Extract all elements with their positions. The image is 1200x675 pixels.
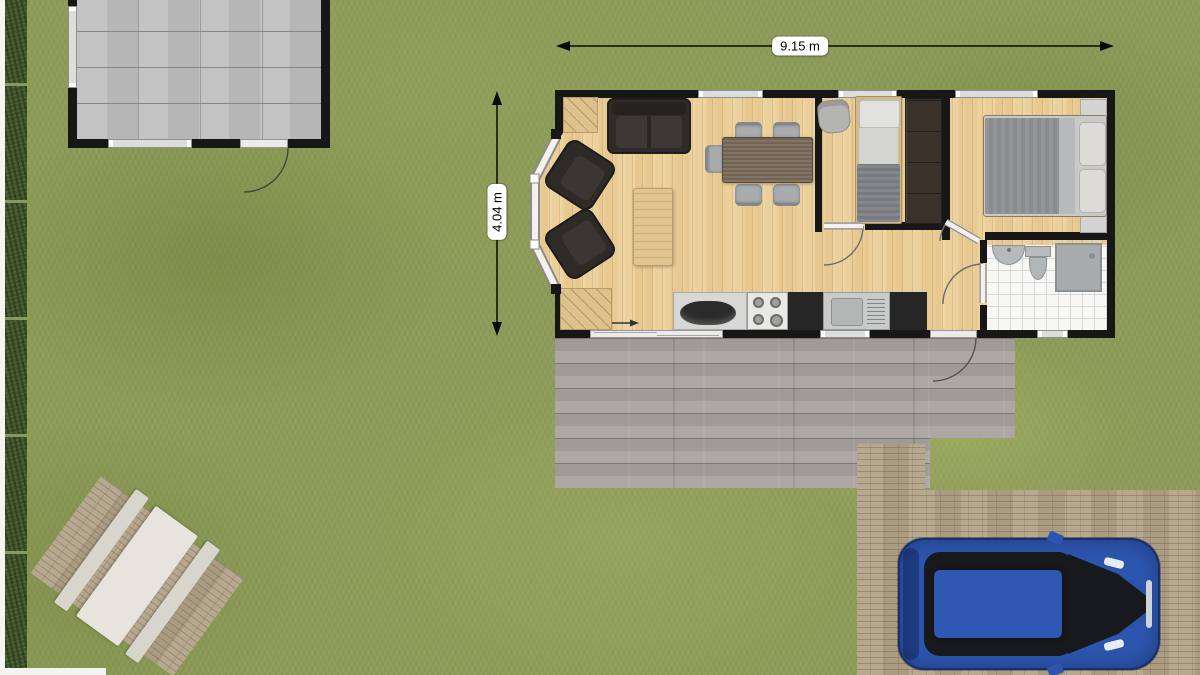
blanket (857, 164, 900, 222)
wood-deck (555, 338, 1015, 438)
site-plan-scene: 9.15 m 4.04 m (0, 0, 1200, 675)
shed (68, 0, 330, 148)
double-bed[interactable] (983, 115, 1107, 217)
corner-step[interactable] (563, 97, 598, 133)
armchair-seat (560, 218, 608, 267)
kitchen-sink[interactable] (823, 292, 890, 330)
car[interactable] (898, 538, 1160, 670)
sofa[interactable] (607, 98, 691, 154)
wall-bedroom-bathroom (985, 232, 1107, 240)
burner (770, 297, 781, 308)
car-rear-shade (903, 548, 919, 660)
border-strip-bottom (0, 668, 106, 675)
wall-bathroom-lower (980, 305, 987, 330)
dining-table[interactable] (722, 137, 813, 183)
sheet (859, 128, 898, 164)
house (555, 90, 1115, 338)
wall-bathroom-upper (980, 240, 987, 263)
deck-door[interactable] (930, 330, 977, 338)
dimension-width-arrow (556, 41, 1114, 51)
pillow (1079, 169, 1106, 213)
toilet-tank (1025, 246, 1051, 257)
dimension-height-label: 4.04 m (488, 184, 507, 240)
counter-dark[interactable] (788, 292, 823, 330)
toilet-bowl (1029, 257, 1047, 280)
window-living (698, 90, 763, 98)
sofa-seat (616, 116, 682, 148)
dining-chair[interactable] (735, 184, 762, 206)
wall-right (1107, 90, 1115, 338)
corner-step[interactable] (560, 288, 612, 330)
window-bedroom-double (955, 90, 1038, 98)
pillow (1079, 122, 1106, 166)
sofa-back (612, 102, 686, 115)
wardrobe[interactable] (905, 98, 942, 224)
dimension-width-label: 9.15 m (772, 37, 828, 56)
burner (770, 314, 783, 327)
shower[interactable] (1055, 243, 1102, 292)
counter-dark[interactable] (890, 292, 927, 330)
dining-chair[interactable] (773, 184, 800, 206)
brick-patio (31, 476, 244, 675)
shed-window-front (108, 139, 192, 148)
kitchen-counter[interactable] (673, 292, 747, 330)
stove[interactable] (747, 292, 788, 330)
wall-bedrooms (942, 98, 950, 240)
armchair-seat (559, 154, 607, 203)
shed-door[interactable] (240, 139, 288, 148)
sink-bowl (831, 298, 863, 326)
picnic-table[interactable] (54, 489, 220, 663)
hedge (5, 0, 27, 668)
window-bathroom (1037, 330, 1068, 338)
picnic-table-top (76, 506, 198, 647)
bedroom-chair[interactable] (816, 98, 851, 134)
coffee-table[interactable] (633, 188, 673, 266)
window-kitchen (820, 330, 870, 338)
car-roof (934, 570, 1062, 638)
duvet (985, 118, 1061, 214)
sliding-door[interactable] (590, 330, 723, 338)
shed-window-left (68, 6, 77, 88)
pillow (859, 100, 900, 128)
door-shed-arc (244, 148, 288, 192)
sink-drainer (867, 298, 885, 324)
single-bed[interactable] (855, 96, 902, 224)
shower-drain (1089, 253, 1095, 259)
burner (753, 314, 764, 325)
toilet[interactable] (1025, 246, 1051, 280)
shed-floor (77, 0, 321, 139)
basin-tap (1007, 248, 1011, 252)
kitchen-basin (680, 301, 736, 325)
duvet-fold (1059, 118, 1075, 214)
burner (753, 297, 764, 308)
car-grille (1146, 580, 1152, 628)
